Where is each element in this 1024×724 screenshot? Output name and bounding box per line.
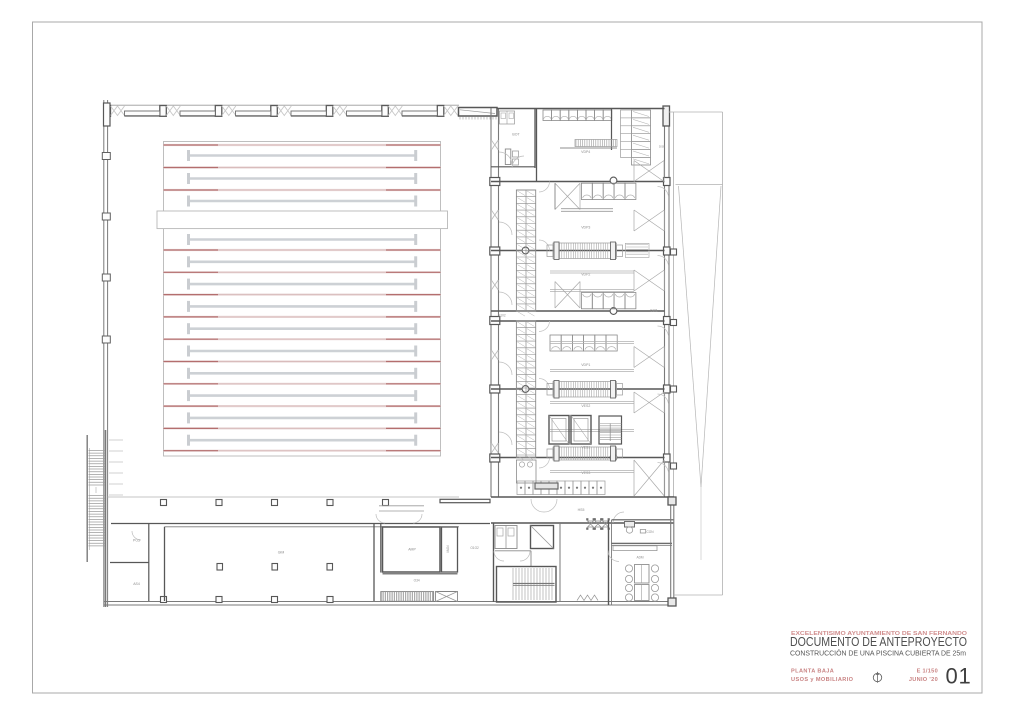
svg-text:JUNIO ’20: JUNIO ’20 [909,677,938,683]
svg-text:VDP4: VDP4 [581,150,590,154]
svg-text:USOS y MOBILIARIO: USOS y MOBILIARIO [791,677,854,683]
svg-text:AS4: AS4 [133,582,140,586]
svg-text:VDP3: VDP3 [581,226,590,230]
svg-text:O34: O34 [414,579,420,583]
svg-text:S101: S101 [650,309,658,313]
svg-text:CONSTRUCCIÓN DE UNA PISCINA CU: CONSTRUCCIÓN DE UNA PISCINA CUBIERTA DE … [790,649,966,658]
svg-text:S102: S102 [498,314,506,318]
svg-text:O1O2: O1O2 [470,546,479,550]
svg-text:CON: CON [646,530,654,534]
svg-text:MAN: MAN [446,545,450,553]
svg-text:01: 01 [946,664,972,689]
svg-text:DSB: DSB [659,145,665,149]
svg-text:VDP1: VDP1 [581,363,590,367]
svg-text:VES3: VES3 [581,471,590,475]
svg-text:AMP: AMP [408,548,416,552]
svg-text:VES2: VES2 [581,404,590,408]
svg-text:ADM: ADM [636,556,643,560]
svg-text:HS5: HS5 [578,508,585,512]
svg-text:PLANTA BAJA: PLANTA BAJA [791,669,834,675]
svg-text:DOCUMENTO DE ANTEPROYECTO: DOCUMENTO DE ANTEPROYECTO [790,635,967,649]
svg-text:E 1/150: E 1/150 [917,669,938,675]
svg-text:BOT: BOT [512,133,520,137]
svg-text:GIM: GIM [278,551,285,555]
